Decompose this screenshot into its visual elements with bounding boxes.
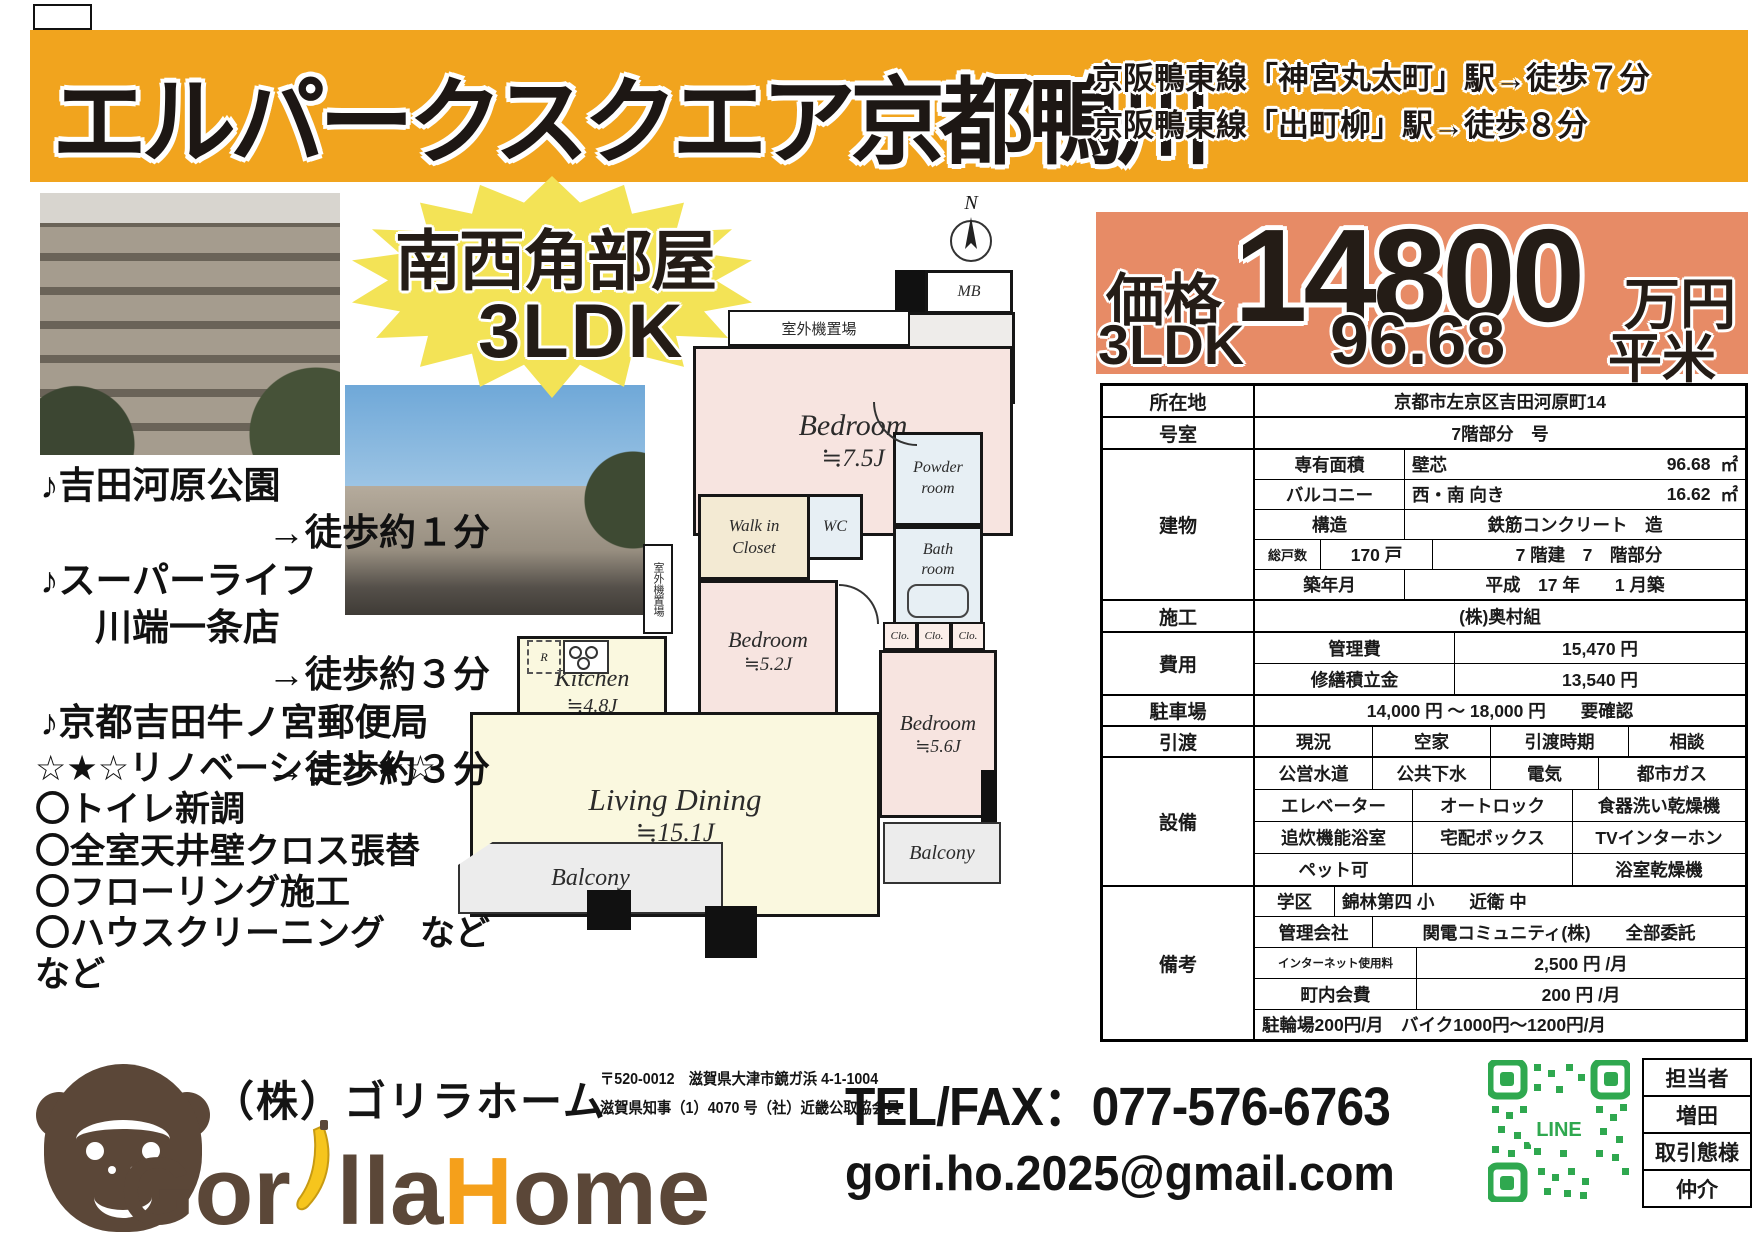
room-bedroom-56-label: Bedroom: [900, 711, 976, 736]
spec-mgmtco-label: 管理会社: [1255, 917, 1373, 947]
spec-parking-value: 14,000 円 ～ 18,000 円 要確認: [1255, 696, 1745, 725]
spec-mgmtco-value: 関電コミュニティ(株) 全部委託: [1373, 917, 1745, 947]
spec-handover-cell: 引渡時期: [1491, 727, 1629, 756]
layout-area: 96.68: [1330, 300, 1505, 380]
banana-icon: [293, 1118, 335, 1237]
room-wic-label2: Closet: [732, 537, 775, 559]
spec-handover-cell: 空家: [1373, 727, 1491, 756]
wall-block: [587, 890, 631, 930]
spec-units-value: 170 戸: [1321, 540, 1433, 569]
spec-parking-label: 駐車場: [1103, 696, 1255, 725]
agent-name: 増田: [1644, 1097, 1750, 1134]
closet-cell: Clo.: [917, 622, 951, 650]
spec-units-label: 総戸数: [1255, 540, 1321, 569]
room-powder: Powder room: [893, 432, 983, 526]
gorillahome-logo: Gor lla H ome: [120, 1118, 710, 1241]
layout-type: 3LDK: [1098, 312, 1244, 377]
title-banner: エルパークスクエア京都鴨川 京阪鴨東線「神宮丸太町」駅→徒歩７分 京阪鴨東線「出…: [30, 30, 1748, 182]
nearby-item: ♪スーパーライフ 川端一条店 →徒歩約３分: [40, 557, 490, 699]
nearby-item: ♪吉田河原公園 →徒歩約１分: [40, 462, 490, 557]
spec-parking-row: 駐車場 14,000 円 ～ 18,000 円 要確認: [1103, 696, 1745, 727]
nearby-name: ♪京都吉田牛ノ宮郵便局: [40, 699, 490, 746]
room-bedroom-52-label: Bedroom: [728, 627, 808, 653]
spec-mgmtfee-value: 15,470 円: [1455, 633, 1745, 663]
tel-fax: TEL/FAX：077-576-6763: [845, 1062, 1390, 1141]
closet-cell: Clo.: [951, 622, 985, 650]
nearby-list: ♪吉田河原公園 →徒歩約１分 ♪スーパーライフ 川端一条店 →徒歩約３分 ♪京都…: [40, 462, 490, 794]
spec-chonai-label: 町内会費: [1255, 979, 1417, 1009]
balcony-right: Balcony: [883, 822, 1001, 884]
line-label: LINE: [1529, 1114, 1589, 1146]
compass-icon: N: [947, 192, 995, 272]
spec-equip-cell: 追炊機能浴室: [1255, 822, 1413, 853]
flyer-page: エルパークスクエア京都鴨川 京阪鴨東線「神宮丸太町」駅→徒歩７分 京阪鴨東線「出…: [0, 0, 1754, 1241]
wall-block: [981, 770, 997, 822]
layout-area-unit: 平米: [1608, 314, 1716, 393]
spec-balcony-kind: 西・南 向き: [1412, 482, 1504, 507]
spec-built-value: 平成 17 年 1 月築: [1405, 570, 1745, 599]
agent-label: 担当者: [1644, 1060, 1750, 1097]
property-title: エルパークスクエア京都鴨川: [52, 46, 1206, 183]
spec-bicycle-value: 駐輪場200円/月 バイク1000円～1200円/月: [1255, 1010, 1745, 1039]
balcony-left-label: Balcony: [551, 865, 630, 892]
room-bedroom-52-size: ≒5.2J: [744, 653, 792, 676]
spec-senyu-unit: ㎡: [1711, 452, 1739, 477]
outdoor-unit-top: 室外機置場: [728, 310, 910, 346]
spec-cost-group: 費用 管理費 15,470 円 修繕積立金 13,540 円: [1103, 633, 1745, 696]
spec-school-value: 錦林第四 小 近衛 中: [1335, 887, 1745, 916]
renovation-item: 〇フローリング施工: [35, 872, 505, 913]
spec-location-label: 所在地: [1103, 386, 1255, 416]
corner-mark: [33, 4, 92, 30]
spec-structure-label: 構造: [1255, 510, 1405, 539]
nearby-name2: 川端一条店: [40, 604, 490, 651]
spec-room-value: 7階部分 号: [1255, 418, 1745, 448]
spec-repairfund-value: 13,540 円: [1455, 664, 1745, 694]
room-bedroom-52: Bedroom ≒5.2J: [698, 580, 838, 722]
spec-structure-value: 鉄筋コンクリート 造: [1405, 510, 1745, 539]
wall-block: [895, 270, 929, 314]
station-line-2: 京阪鴨東線「出町柳」駅→徒歩８分: [1092, 103, 1650, 150]
renovation-list: ☆★☆リノベーション★☆ 〇トイレ新調 〇全室天井壁クロス張替 〇フローリング施…: [35, 748, 505, 996]
spec-handover-cell: 現況: [1255, 727, 1373, 756]
logo-lla: lla: [337, 1142, 444, 1241]
spec-floors-value: 7 階建 7 階部分: [1433, 540, 1745, 569]
spec-notes-group: 備考 学区 錦林第四 小 近衛 中 管理会社 関電コミュニティ(株) 全部委託 …: [1103, 887, 1745, 1039]
nearby-walk: →徒歩約３分: [40, 651, 490, 698]
room-bath-label1: Bath: [923, 540, 953, 560]
room-powder-label1: Powder: [913, 458, 963, 479]
spec-notes-label: 備考: [1103, 887, 1255, 1039]
spec-room-row: 号室 7階部分 号: [1103, 418, 1745, 450]
outdoor-unit-left-label: 室外機置場: [650, 562, 666, 617]
spec-senyu-value: 96.68: [1667, 454, 1711, 475]
floor-plan: N MB Ent. SB 室外機置場 Bedroom ≒7.5J Powder: [455, 192, 1087, 964]
refrigerator-label: R: [540, 650, 547, 665]
station-line-1: 京阪鴨東線「神宮丸太町」駅→徒歩７分: [1092, 56, 1650, 103]
door-arc: [839, 584, 879, 624]
spec-senyu-label: 専有面積: [1255, 450, 1405, 479]
spec-internet-label: インターネット使用料: [1255, 948, 1417, 978]
renovation-title: ☆★☆リノベーション★☆: [35, 748, 505, 789]
building-photo-1: [40, 193, 340, 455]
room-mb-label: MB: [957, 283, 980, 301]
spec-building-group: 建物 専有面積 壁芯 96.68 ㎡ バルコニー 西・南 向き 16.62 ㎡ …: [1103, 450, 1745, 601]
spec-equip-cell: 公共下水: [1373, 758, 1491, 789]
outdoor-unit-left: 室外機置場: [643, 544, 673, 634]
spec-handover-row: 引渡 現況 空家 引渡時期 相談: [1103, 727, 1745, 758]
spec-constructor-row: 施工 (株)奥村組: [1103, 601, 1745, 633]
agent-type-label: 取引態様: [1644, 1134, 1750, 1171]
spec-constructor-value: (株)奥村組: [1255, 601, 1745, 631]
spec-location-row: 所在地 京都市左京区吉田河原町14: [1103, 386, 1745, 418]
room-walkin-closet: Walk in Closet: [698, 494, 810, 580]
room-bedroom-75-size: ≒7.5J: [821, 443, 884, 473]
renovation-item: 〇全室天井壁クロス張替: [35, 831, 505, 872]
spec-cost-label: 費用: [1103, 633, 1255, 694]
logo-gor: Gor: [120, 1142, 291, 1241]
spec-equip-cell: 公営水道: [1255, 758, 1373, 789]
spec-location-value: 京都市左京区吉田河原町14: [1255, 386, 1745, 416]
nearby-name: ♪スーパーライフ: [40, 557, 490, 604]
spec-handover-cell: 相談: [1629, 727, 1745, 756]
room-powder-label2: room: [921, 479, 954, 500]
spec-equip-cell: 食器洗い乾燥機: [1573, 790, 1745, 821]
spec-mgmtfee-label: 管理費: [1255, 633, 1455, 663]
room-wc: WC: [807, 494, 863, 560]
spec-built-label: 築年月: [1255, 570, 1405, 599]
spec-equip-cell: オートロック: [1413, 790, 1573, 821]
refrigerator-box: R: [527, 640, 561, 674]
spec-equip-cell: エレベーター: [1255, 790, 1413, 821]
stove-icon: [563, 640, 609, 674]
spec-equip-cell: 浴室乾燥機: [1573, 854, 1745, 885]
spec-internet-value: 2,500 円 /月: [1417, 948, 1745, 978]
logo-ome: ome: [513, 1142, 710, 1241]
agent-table: 担当者 増田 取引態様 仲介: [1642, 1058, 1752, 1208]
agent-type: 仲介: [1644, 1171, 1750, 1206]
room-bedroom-56-size: ≒5.6J: [915, 736, 961, 757]
room-living-label: Living Dining: [588, 782, 761, 818]
room-mb: MB: [925, 270, 1013, 314]
spec-school-label: 学区: [1255, 887, 1335, 916]
bathtub-icon: [907, 584, 969, 618]
spec-equip-cell: ペット可: [1255, 854, 1413, 885]
spec-equipment-label: 設備: [1103, 758, 1255, 885]
nearby-name: ♪吉田河原公園: [40, 462, 490, 509]
spec-balcony-label: バルコニー: [1255, 480, 1405, 509]
balcony-right-label: Balcony: [909, 842, 975, 865]
spec-equipment-group: 設備 公営水道 公共下水 電気 都市ガス エレベーター オートロック 食器洗い乾…: [1103, 758, 1745, 887]
spec-balcony-value: 16.62: [1667, 484, 1711, 505]
renovation-item: 〇トイレ新調: [35, 789, 505, 830]
outdoor-unit-top-label: 室外機置場: [781, 318, 856, 339]
renovation-item: 〇ハウスクリーニング などなど: [35, 913, 505, 996]
spec-handover-label: 引渡: [1103, 727, 1255, 756]
room-bedroom-56: Bedroom ≒5.6J: [879, 650, 997, 818]
spec-equip-cell: 電気: [1491, 758, 1599, 789]
nearby-walk: →徒歩約１分: [40, 509, 490, 556]
logo-h: H: [443, 1142, 512, 1241]
spec-chonai-value: 200 円 /月: [1417, 979, 1745, 1009]
room-wc-label: WC: [823, 518, 847, 536]
room-bath: Bath room: [893, 526, 983, 632]
wall-block: [705, 906, 757, 958]
compass-n-label: N: [947, 192, 995, 215]
closet-cell: Clo.: [883, 622, 917, 650]
room-wic-label1: Walk in: [729, 515, 780, 537]
line-qr-code: LINE: [1488, 1060, 1630, 1202]
spec-equip-cell: 都市ガス: [1599, 758, 1745, 789]
room-bath-label2: room: [921, 560, 954, 580]
email-address: gori.ho.2025@gmail.com: [845, 1146, 1395, 1202]
station-access: 京阪鴨東線「神宮丸太町」駅→徒歩７分 京阪鴨東線「出町柳」駅→徒歩８分: [1092, 56, 1650, 149]
spec-repairfund-label: 修繕積立金: [1255, 664, 1455, 694]
spec-equip-cell: [1413, 854, 1573, 885]
spec-room-label: 号室: [1103, 418, 1255, 448]
spec-constructor-label: 施工: [1103, 601, 1255, 631]
spec-table: 所在地 京都市左京区吉田河原町14 号室 7階部分 号 建物 専有面積 壁芯 9…: [1100, 383, 1748, 1042]
spec-equip-cell: 宅配ボックス: [1413, 822, 1573, 853]
spec-equip-cell: TVインターホン: [1573, 822, 1745, 853]
spec-balcony-unit: ㎡: [1711, 482, 1739, 507]
spec-building-label: 建物: [1103, 450, 1255, 599]
spec-senyu-kind: 壁芯: [1412, 452, 1447, 477]
